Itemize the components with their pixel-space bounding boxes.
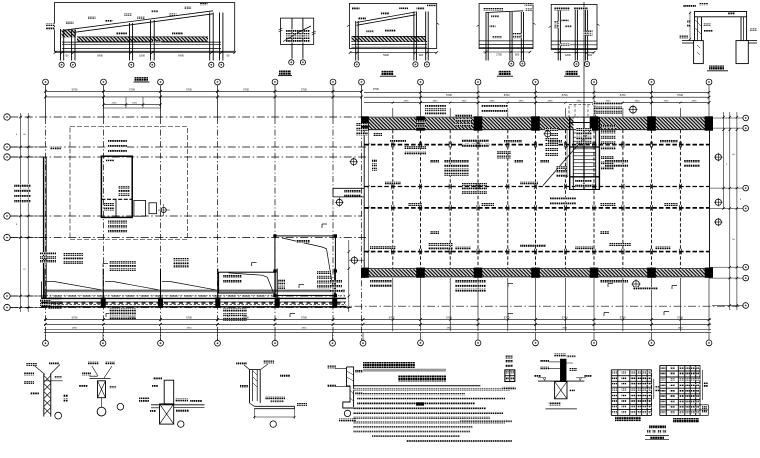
svg-text:5700: 5700 [72,316,78,320]
svg-text:2850: 2850 [577,101,583,103]
svg-text:5700: 5700 [620,316,626,320]
svg-text:5400: 5400 [97,54,103,58]
svg-text:5700: 5700 [677,316,683,320]
svg-text:5700: 5700 [186,87,192,91]
svg-text:5700: 5700 [186,316,192,320]
svg-text:5700: 5700 [129,87,135,91]
svg-text:5700: 5700 [243,316,249,320]
svg-text:5700: 5700 [562,93,568,97]
svg-text:2850: 2850 [635,101,641,103]
svg-text:5700: 5700 [677,93,683,97]
svg-text:5700: 5700 [301,87,307,91]
svg-text:2850: 2850 [187,328,193,330]
svg-text:2850: 2850 [302,328,308,330]
svg-text:1800: 1800 [565,53,571,57]
svg-text:900: 900 [419,53,424,57]
svg-text:2850: 2850 [447,328,453,330]
svg-text:1800: 1800 [139,54,145,58]
svg-text:5700: 5700 [504,93,510,97]
svg-text:2850: 2850 [72,328,78,330]
svg-text:5700: 5700 [562,316,568,320]
svg-text:2850: 2850 [404,101,410,103]
svg-text:8700: 8700 [373,87,379,91]
svg-text:900: 900 [588,53,593,57]
svg-text:5700: 5700 [129,316,135,320]
svg-text:5700: 5700 [72,87,78,91]
svg-text:2850: 2850 [562,328,568,330]
svg-text:2850: 2850 [519,101,525,103]
svg-text:2850: 2850 [462,101,468,103]
svg-text:5700: 5700 [446,316,452,320]
svg-text:5700: 5700 [243,87,249,91]
svg-text:2850: 2850 [692,101,698,103]
svg-text:2850: 2850 [548,101,554,103]
svg-text:900: 900 [515,53,520,57]
svg-text:2850: 2850 [490,101,496,103]
svg-text:5400: 5400 [178,54,184,58]
svg-text:5700: 5700 [301,316,307,320]
svg-text:2700: 2700 [496,53,502,57]
svg-text:1800: 1800 [132,103,138,105]
svg-text:2850: 2850 [433,101,439,103]
svg-text:5700: 5700 [389,316,395,320]
svg-text:2850: 2850 [678,328,684,330]
svg-text:5700: 5700 [504,316,510,320]
svg-text:5700: 5700 [620,93,626,97]
svg-text:2400: 2400 [112,103,118,105]
svg-text:5400: 5400 [383,53,389,57]
svg-text:2850: 2850 [664,101,670,103]
svg-text:5700: 5700 [446,93,452,97]
